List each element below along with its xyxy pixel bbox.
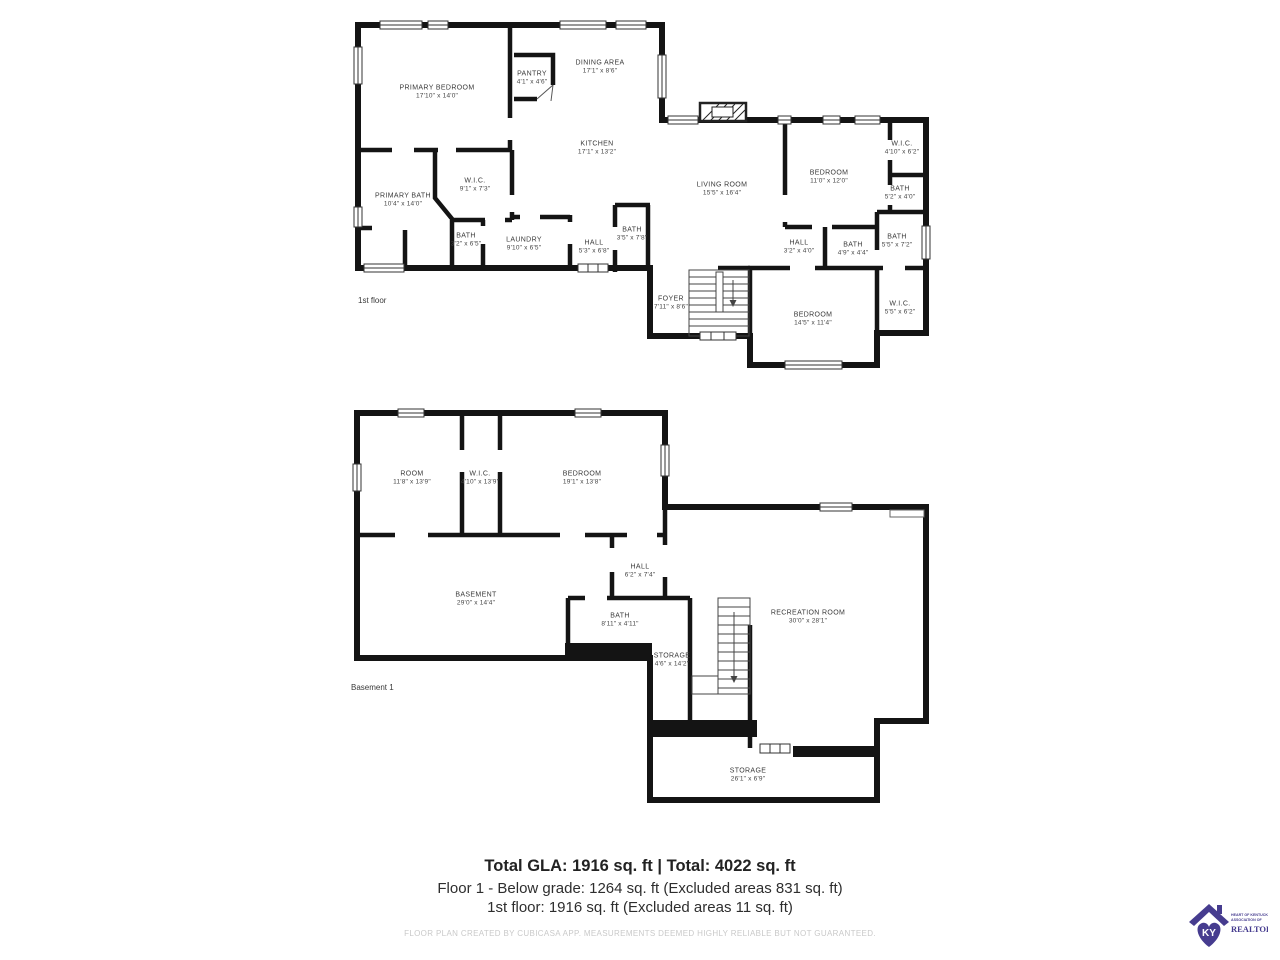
basement-walls — [357, 413, 926, 800]
logo-org-line1: HEART OF KENTUCKY — [1231, 913, 1268, 917]
area-summary: Total GLA: 1916 sq. ft | Total: 4022 sq.… — [0, 857, 1280, 938]
ky-realtors-logo-graphic: KY HEART OF KENTUCKY ASSOCIATION OF REAL… — [1188, 901, 1268, 949]
realtor-association-logo: KY HEART OF KENTUCKY ASSOCIATION OF REAL… — [1188, 901, 1268, 954]
total-gla-line: Total GLA: 1916 sq. ft | Total: 4022 sq.… — [0, 857, 1280, 876]
logo-monogram: KY — [1202, 928, 1216, 939]
basement-windows — [353, 409, 924, 753]
basement-stairs — [692, 598, 750, 694]
first-floor-walls — [358, 25, 926, 365]
first-floor-windows — [354, 21, 930, 369]
floor1-area-line: Floor 1 - Below grade: 1264 sq. ft (Excl… — [0, 879, 1280, 898]
logo-roof — [1189, 904, 1229, 926]
first-floor-area-line: 1st floor: 1916 sq. ft (Excluded areas 1… — [0, 898, 1280, 917]
floorplan-drawing — [0, 0, 1280, 960]
floorplan-page: 1st floorPRIMARY BEDROOM17'10" x 14'0"PA… — [0, 0, 1280, 960]
foyer-stairs — [689, 270, 749, 336]
logo-org-line2: ASSOCIATION OF — [1231, 918, 1262, 922]
logo-org-line3: REALTORS® — [1231, 924, 1268, 934]
cubicasa-disclaimer: FLOOR PLAN CREATED BY CUBICASA APP. MEAS… — [0, 929, 1280, 938]
entry-steps — [700, 103, 746, 121]
